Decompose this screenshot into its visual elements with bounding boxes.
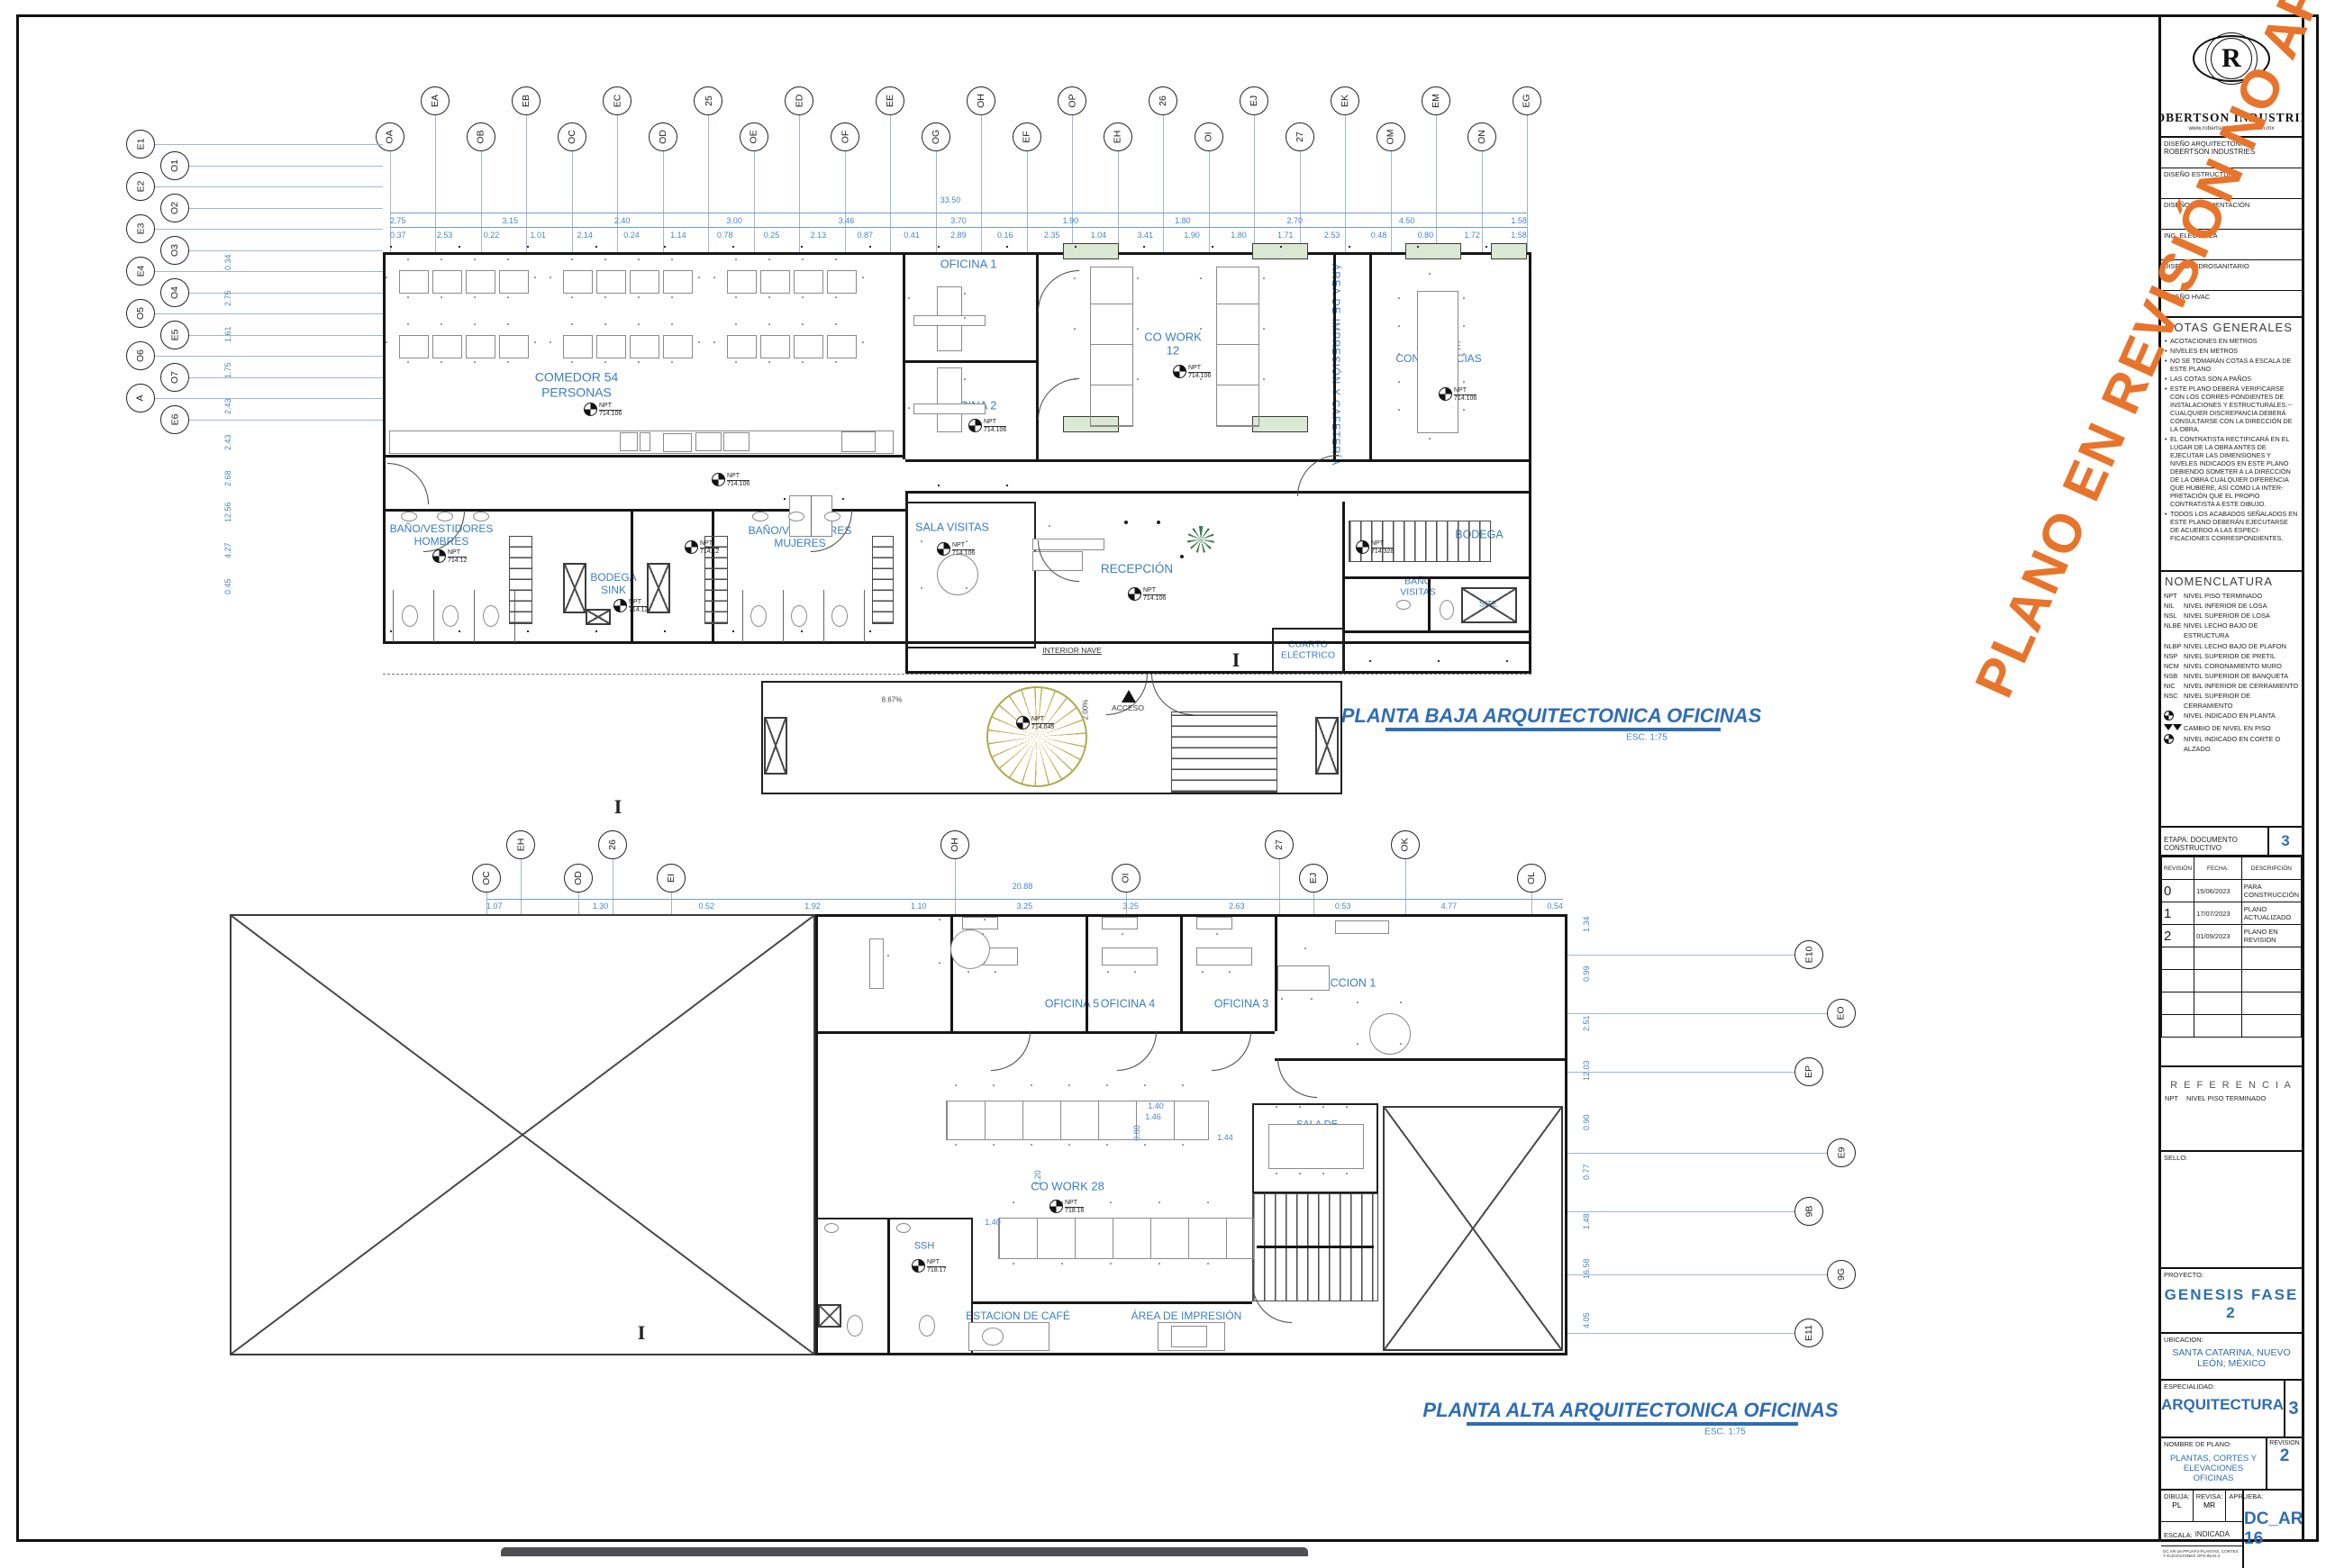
revision-table: REVISIÓNFECHA:DESCRIPCIÓN015/06/2023PARA… <box>2161 857 2302 1067</box>
site-rack <box>1461 587 1517 623</box>
column-marker <box>1212 246 1213 248</box>
grid-bubble-label: O3 <box>169 243 180 256</box>
level-plan-icon <box>2164 711 2174 721</box>
column-marker <box>732 246 734 248</box>
dimension-value: 1.07 <box>486 902 503 912</box>
reference-abbr: NPT <box>2165 1094 2186 1102</box>
grid-bubble-circle: OA <box>376 122 404 151</box>
steel-column-icon: I <box>614 795 622 819</box>
drawn-by-label: DIBUJA: <box>2161 1491 2193 1500</box>
nomenclature-text: NIVEL SUPERIOR DE LOSA <box>2184 611 2270 621</box>
chair <box>768 361 770 363</box>
grid-bubble-circle: EM <box>1422 86 1450 115</box>
grid-bubble-label: EB <box>521 95 532 107</box>
grid-bubble-label: E5 <box>169 329 180 340</box>
chair <box>1263 378 1265 380</box>
dimension-value: 0.41 <box>904 231 920 241</box>
revision-cell <box>2194 947 2242 970</box>
file-code: DC AR-16-PPUAF2-PLANTAS, CORTES Y ELEVAC… <box>2161 1546 2242 1568</box>
dimension-value: 0.24 <box>623 231 640 241</box>
grid-bubble-label: OL <box>1526 872 1537 884</box>
revision-row-empty <box>2162 992 2302 1015</box>
dimension-value: 1.58 <box>1511 231 1527 241</box>
npt-level-text: NPT714.106 <box>952 542 975 557</box>
note-item: ESTE PLANO DEBERÁ VERIFICARSE CON LOS CO… <box>2161 385 2302 435</box>
grid-bubble-circle: OE <box>740 122 768 151</box>
grid-bubble-label: 26 <box>1158 95 1168 106</box>
grid-bubble-circle: E4 <box>126 257 155 286</box>
storage <box>586 609 611 625</box>
bottom-screen-artifact <box>501 1547 1308 1556</box>
round-table <box>937 554 978 595</box>
desk <box>937 367 962 432</box>
toilet <box>831 605 848 627</box>
dining-table <box>499 270 529 294</box>
grid-bubble-label: EF <box>1022 131 1032 142</box>
chair <box>1429 273 1431 275</box>
refrigerator <box>841 431 876 452</box>
chair <box>441 361 442 363</box>
grid-bubble-circle: EC <box>603 86 631 115</box>
grid-bubble-circle: EJ <box>1240 86 1268 115</box>
nomenclature-abbr: NLBP <box>2164 641 2184 651</box>
column-marker <box>527 246 529 248</box>
column-marker <box>938 485 940 486</box>
dining-table <box>466 270 495 294</box>
revision-cell: 1 <box>2162 902 2194 925</box>
notes-list: ACOTACIONES EN METROSNIVELES EN METROSNO… <box>2161 337 2302 544</box>
dimension-row: 0.372.530.221.012.140.241.140.780.252.13… <box>390 231 1527 241</box>
grid-bubble-label: ED <box>794 95 804 108</box>
pb-wall <box>1036 252 1039 459</box>
toilet <box>847 1315 863 1337</box>
chair <box>1200 328 1202 330</box>
project-name: GENESIS FASE 2 <box>2161 1279 2302 1322</box>
pb-wall <box>903 252 905 459</box>
column-marker <box>1485 246 1487 248</box>
grid-bubble-label: OK <box>1400 838 1411 851</box>
exterior-stair <box>1171 711 1277 793</box>
grid-leader-line <box>1567 1211 1795 1212</box>
round-table <box>1369 1013 1411 1055</box>
nomenclature-item: NIVEL INDICADO EN PLANTA <box>2161 711 2302 723</box>
dining-table <box>827 335 857 358</box>
grid-bubble-label: OP <box>1067 94 1077 107</box>
note-item: TODOS LOS ACABADOS SEÑALADOS EN ESTE PLA… <box>2161 510 2302 544</box>
nomenclature-item: NILNIVEL INFERIOR DE LOSA <box>2161 601 2302 611</box>
pa-void-right <box>1383 1106 1563 1351</box>
planta-alta-title-underline <box>1467 1422 1798 1426</box>
chair <box>671 323 673 325</box>
grid-leader-line <box>1567 1072 1795 1073</box>
sink <box>752 512 768 521</box>
nomenclature-list: NPTNIVEL PISO TERMINADONILNIVEL INFERIOR… <box>2161 591 2302 754</box>
level-marker-icon <box>912 1259 925 1273</box>
dimension-value: 2.75 <box>390 216 406 227</box>
revision-cell: 2 <box>2162 925 2194 947</box>
seal-label: SELLO: <box>2161 1152 2302 1162</box>
conference-table <box>1417 291 1458 433</box>
note-item: NO SE TOMARÁN COTAS A ESCALA DE ESTE PLA… <box>2161 357 2302 375</box>
chair <box>964 378 966 380</box>
grid-bubble-circle: OH <box>967 86 995 115</box>
dimension-value: 2.89 <box>950 231 967 241</box>
sink <box>824 1223 839 1233</box>
dimension-value: 1.80 <box>1175 216 1191 227</box>
revision-cell <box>2162 970 2194 992</box>
chair <box>407 258 409 260</box>
level-marker-icon <box>685 540 698 554</box>
chair <box>1137 328 1139 330</box>
dining-table <box>760 270 790 294</box>
grid-bubble-circle: OB <box>467 122 495 151</box>
chair <box>671 361 673 363</box>
revision-cell: 01/09/2023 <box>2194 925 2242 947</box>
grid-bubble-circle: EA <box>421 86 450 115</box>
revision-row: 015/06/2023PARA CONSTRUCCIÓN <box>2162 880 2302 902</box>
npt-level-text: NPT718.16 <box>1065 1200 1084 1214</box>
stall-partition <box>783 590 784 642</box>
dimension-value: 1.92 <box>804 902 821 912</box>
grid-bubble-circle: 27 <box>1265 830 1294 859</box>
grid-bubble-circle: O6 <box>126 341 155 370</box>
dimension-value: 1.10 <box>911 902 927 912</box>
level-marker-icon <box>1439 387 1452 401</box>
nomenclature-item: NPTNIVEL PISO TERMINADO <box>2161 591 2302 601</box>
dining-table <box>663 270 693 294</box>
grid-bubble-circle: EH <box>506 830 535 859</box>
drawing-name-box: NOMBRE DE PLANO: PLANTAS, CORTES Y ELEVA… <box>2161 1438 2302 1491</box>
specialty-label: ESPECIALIDAD: <box>2161 1381 2284 1391</box>
chair <box>441 258 442 260</box>
dining-table <box>760 335 790 358</box>
dining-table <box>432 335 462 358</box>
grid-bubble-label: EJ <box>1308 873 1319 884</box>
drawn-by-value: PL <box>2161 1500 2193 1509</box>
dimension-value: 0.25 <box>764 231 780 241</box>
npt-level-text: NPT714.12 <box>448 549 467 564</box>
pb-wall <box>1369 252 1372 459</box>
pa-wall <box>1180 914 1183 1031</box>
chair <box>571 361 573 363</box>
grid-bubble-label: 26 <box>607 839 618 850</box>
grid-bubble-label: EH <box>1113 131 1123 144</box>
specialty-number: 3 <box>2285 1381 2302 1437</box>
revision-cell: PLANO EN REVISION <box>2241 925 2301 947</box>
grid-bubble-label: 27 <box>1295 131 1305 142</box>
nomenclature-abbr: NSB <box>2164 671 2184 681</box>
reference-title: R E F E R E N C I A <box>2161 1067 2302 1091</box>
nomenclature-item: NLBENIVEL LECHO BAJO DE ESTRUCTURA <box>2161 621 2302 640</box>
pb-wall <box>1342 576 1531 579</box>
level-marker-icon <box>1173 365 1186 378</box>
dimension-value: 0.54 <box>1547 902 1563 912</box>
grid-bubble-circle: OC <box>558 122 586 151</box>
nomenclature-abbr: NSC <box>2164 691 2184 711</box>
chair <box>507 296 509 298</box>
grid-leader-line <box>152 313 383 314</box>
grid-bubble-label: 25 <box>703 95 713 106</box>
general-notes: NOTAS GENERALES ACOTACIONES EN METROSNIV… <box>2161 318 2302 572</box>
column-marker <box>459 630 460 632</box>
pb-wall <box>1342 630 1531 633</box>
chair <box>534 276 536 278</box>
chair <box>862 341 864 343</box>
chair <box>507 323 509 325</box>
grid-bubble-circle: EK <box>1331 86 1359 115</box>
grid-bubble-circle: O4 <box>160 278 189 307</box>
grid-leader-line <box>152 144 383 145</box>
grid-bubble-label: EJ <box>1249 95 1259 106</box>
planta-alta-scale: ESC. 1:75 <box>1704 1428 1746 1437</box>
level-marker-icon <box>432 549 446 563</box>
cowork-table <box>998 1218 1254 1259</box>
pa-wall <box>815 1031 1275 1034</box>
dimension-value: 2.70 <box>1287 216 1304 227</box>
sink <box>401 512 417 521</box>
chair <box>571 296 573 298</box>
chair <box>407 323 409 325</box>
window <box>1491 243 1527 259</box>
stall-partition <box>393 590 394 642</box>
stall-partition <box>742 590 743 642</box>
nomenclature-abbr: NCM <box>2164 661 2184 671</box>
dimension-value: 2.14 <box>577 231 593 241</box>
cowork-table <box>1090 267 1133 427</box>
dimension-value: 1.90 <box>1184 231 1200 241</box>
npt-level-text: NPT718.17 <box>927 1259 946 1273</box>
chair <box>735 323 737 325</box>
revision-cell <box>2241 992 2301 1015</box>
grid-bubble-circle: OH <box>940 830 969 859</box>
revision-row-empty <box>2162 1015 2302 1038</box>
revision-header: REVISIÓN <box>2162 857 2194 880</box>
coffee-counter <box>968 1322 1049 1351</box>
chair <box>534 341 536 343</box>
grid-bubble-circle: OF <box>831 122 859 151</box>
reviewed-by-value: MR <box>2194 1500 2226 1509</box>
nomenclature-abbr <box>2164 723 2184 733</box>
grid-bubble-label: A <box>135 394 146 401</box>
grid-bubble-label: EI <box>666 874 677 883</box>
scale-value: INDICADA <box>2195 1530 2230 1538</box>
chair <box>1463 353 1465 355</box>
toilet <box>442 605 459 627</box>
grid-bubble-label: EA <box>430 95 441 107</box>
dimension-row: 1.071.300.521.921.103.253.252.630.534.77… <box>486 902 1563 912</box>
dimension-value: 3.25 <box>1017 902 1033 912</box>
chair <box>1463 325 1465 327</box>
pb-wall <box>1333 252 1336 459</box>
drawing-name-label: NOMBRE DE PLANO: <box>2161 1438 2266 1448</box>
column-marker <box>1349 246 1350 248</box>
column-marker <box>1369 660 1371 662</box>
nomenclature-item: NSPNIVEL SUPERIOR DE PRETIL <box>2161 651 2302 661</box>
stall-partition <box>864 590 865 642</box>
window <box>1405 243 1461 259</box>
nomenclature-text: CAMBIO DE NIVEL EN PISO <box>2184 723 2271 733</box>
stage-number: 3 <box>2269 828 2302 855</box>
column-marker <box>1417 246 1419 248</box>
pb-cuarto-electrico-wall <box>1272 628 1344 673</box>
grid-bubble-circle: 26 <box>1149 86 1177 115</box>
dining-table <box>563 335 593 358</box>
grid-bubble-label: 9G <box>1836 1268 1847 1281</box>
chair <box>604 296 606 298</box>
level-change-icon <box>2164 724 2173 730</box>
dining-table <box>466 335 495 358</box>
microwave <box>695 432 722 451</box>
desk <box>869 938 884 989</box>
dimension-row: 2.753.152.403.003.463.701.901.802.704.50… <box>390 216 1527 227</box>
desk <box>1102 947 1158 965</box>
dining-table <box>794 335 823 358</box>
pa-ssh-wall <box>815 1218 973 1355</box>
revision-row: 201/09/2023PLANO EN REVISION <box>2162 925 2302 947</box>
npt-level-text: NPT714.106 <box>727 473 750 487</box>
nomenclature-abbr <box>2164 734 2184 754</box>
nomenclature-abbr: NPT <box>2164 591 2184 601</box>
grid-bubble-circle: E10 <box>1794 940 1823 969</box>
dimension-value: 2.35 <box>1044 231 1060 241</box>
chair <box>474 296 476 298</box>
grid-bubble-circle: E9 <box>1827 1138 1856 1167</box>
dimension-value: 0.48 <box>1371 231 1387 241</box>
dimension-value: 1.80 <box>1231 231 1247 241</box>
chair <box>768 323 770 325</box>
dining-table <box>630 270 659 294</box>
grid-bubble-circle: E6 <box>160 405 189 434</box>
chair <box>441 323 442 325</box>
grid-bubble-label: O5 <box>135 307 146 320</box>
column-marker <box>595 246 597 248</box>
dining-table <box>663 335 693 358</box>
stair-rail <box>1257 1246 1374 1248</box>
nomenclature-abbr: NSL <box>2164 611 2184 621</box>
grid-leader-line <box>1567 1274 1828 1275</box>
pa-wall <box>950 914 953 1031</box>
chair <box>1398 325 1400 327</box>
dimension-value: 1.71 <box>1277 231 1294 241</box>
location-box: UBICACION: SANTA CATARINA, NUEVO LEÓN; M… <box>2161 1334 2302 1381</box>
nomenclature-abbr: NIC <box>2164 681 2184 691</box>
toilet <box>750 605 767 627</box>
shelf <box>1102 917 1138 929</box>
nomenclature-text: NIVEL SUPERIOR DE BANQUETA <box>2184 671 2288 681</box>
dining-table <box>596 270 626 294</box>
column-marker <box>842 498 844 500</box>
grid-bubble-circle: 25 <box>694 86 722 115</box>
chair <box>1263 328 1265 330</box>
chair <box>1429 438 1431 440</box>
dining-table <box>727 335 757 358</box>
chair <box>1263 277 1265 279</box>
npt-level-text: NPT714.106 <box>984 419 1006 433</box>
stairs <box>1349 521 1491 562</box>
chair <box>638 361 640 363</box>
grid-bubble-label: OE <box>749 130 759 143</box>
pb-wall <box>1428 576 1431 630</box>
column-marker <box>869 246 871 248</box>
pb-wall <box>383 455 903 458</box>
grid-bubble-circle: EO <box>1827 999 1856 1028</box>
grid-bubble-circle: E2 <box>126 172 155 201</box>
revision-row: 117/07/2023PLANO ACTUALIZADO <box>2162 902 2302 925</box>
shower <box>647 563 670 613</box>
dimension-value: 0.22 <box>484 231 500 241</box>
dimension-value: 1.30 <box>593 902 609 912</box>
shower <box>818 1304 841 1328</box>
dimension-value: 0.52 <box>698 902 714 912</box>
chair <box>550 276 551 278</box>
revision-cell <box>2162 947 2194 970</box>
chair <box>507 361 509 363</box>
chair <box>638 323 640 325</box>
chair <box>604 361 606 363</box>
revision-number: 2 <box>2267 1446 2302 1466</box>
grid-bubble-label: OC <box>481 871 492 885</box>
level-marker-icon <box>613 599 627 612</box>
grid-bubble-circle: OG <box>922 122 950 151</box>
grid-bubble-circle: EG <box>1513 86 1541 115</box>
dimension-value: 3.70 <box>950 216 967 227</box>
revision-cell: PARA CONSTRUCCIÓN <box>2241 880 2301 902</box>
npt-level-text: NPT714.106 <box>1454 387 1476 402</box>
grid-bubble-circle: E11 <box>1794 1319 1823 1347</box>
grid-bubble-label: EM <box>1431 94 1441 108</box>
grid-bubble-label: E9 <box>1836 1147 1847 1159</box>
printer <box>1171 1326 1207 1347</box>
nomenclature-item: NIVEL INDICADO EN CORTE O ALZADO <box>2161 734 2302 754</box>
grid-leader-line <box>1567 1333 1795 1334</box>
pa-wall <box>1275 1058 1567 1061</box>
chair <box>835 323 837 325</box>
sink <box>896 1223 911 1233</box>
seal-box: SELLO: <box>2161 1152 2302 1269</box>
grid-leader-line <box>152 271 383 272</box>
column-marker <box>732 630 734 632</box>
level-marker-icon <box>1049 1200 1063 1213</box>
level-marker-icon <box>1128 587 1141 601</box>
column-marker <box>801 246 803 248</box>
revision-cell <box>2194 992 2242 1015</box>
nomenclature-text: NIVEL INFERIOR DE LOSA <box>2184 601 2267 611</box>
npt-level-text: NPT714.328 <box>1371 540 1394 555</box>
pa-wall <box>887 1218 890 1355</box>
armchair <box>1124 521 1128 524</box>
chair <box>474 258 476 260</box>
sink <box>788 512 804 521</box>
chair <box>698 276 700 278</box>
chair <box>1463 409 1465 411</box>
chair <box>386 276 387 278</box>
toilet <box>791 605 807 627</box>
dimension-line <box>486 899 1563 900</box>
chair <box>735 361 737 363</box>
project-box: PROYECTO: GENESIS FASE 2 <box>2161 1269 2302 1334</box>
nomenclature-item: NICNIVEL INFERIOR DE CERRAMIENTO <box>2161 681 2302 691</box>
grid-bubble-circle: OM <box>1376 122 1405 151</box>
grid-bubble-circle: E5 <box>160 321 189 349</box>
grid-leader-line <box>152 229 383 230</box>
plant <box>1187 526 1214 553</box>
spiral-stair <box>986 686 1087 787</box>
dimension-value: 1.04 <box>1091 231 1107 241</box>
pa-double-height-void <box>230 914 815 1355</box>
stall-partition <box>823 590 824 642</box>
chair <box>835 258 837 260</box>
dining-table <box>499 335 529 358</box>
